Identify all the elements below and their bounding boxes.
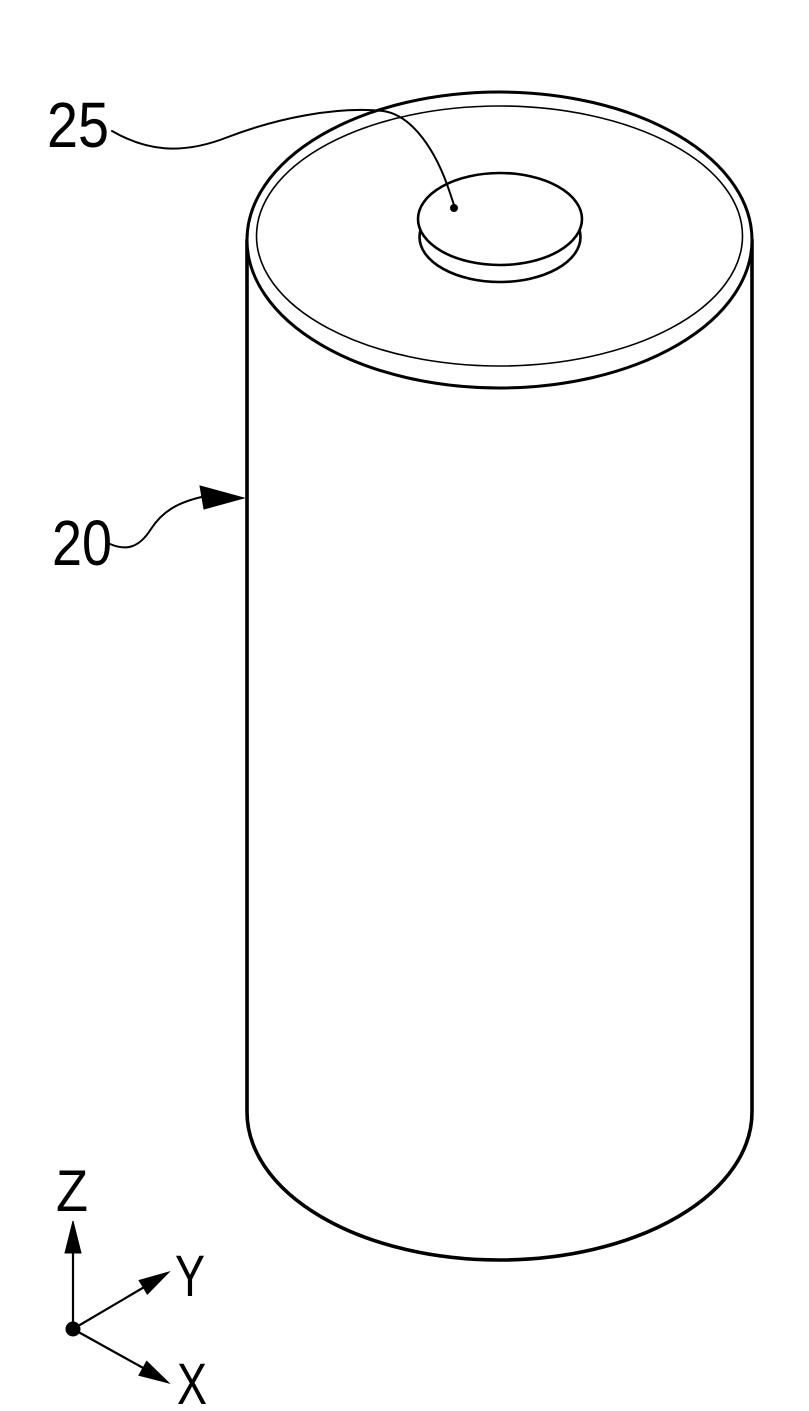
axis-z-arrow-icon — [65, 1221, 81, 1253]
patent-figure-page: 25 20 Z Y X — [0, 0, 809, 1411]
axis-y-arrow-icon — [139, 1272, 169, 1294]
label-20-leader-line — [110, 496, 206, 547]
axis-x-label: X — [177, 1352, 207, 1411]
figure-canvas: 25 20 Z Y X — [0, 0, 809, 1411]
axis-x-line — [73, 1329, 145, 1369]
terminal-disc-top-ellipse — [418, 173, 582, 265]
label-25: 25 — [47, 89, 109, 161]
label-25-leader-dot — [450, 204, 458, 212]
coordinate-axes-indicator — [65, 1221, 169, 1383]
axis-x-arrow-icon — [139, 1361, 169, 1383]
label-20-arrow-icon — [200, 486, 244, 509]
axis-z-label: Z — [56, 1159, 88, 1224]
label-20: 20 — [52, 507, 112, 579]
axis-y-line — [73, 1286, 146, 1329]
battery-cell-drawing — [110, 92, 752, 1260]
cylinder-body-outline — [247, 240, 752, 1260]
axis-y-label: Y — [175, 1244, 205, 1309]
